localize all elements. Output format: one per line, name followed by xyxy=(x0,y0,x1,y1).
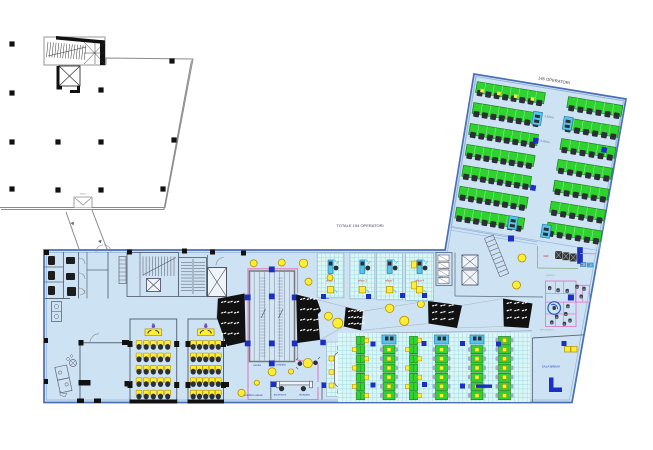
svg-text:ufficio 2: ufficio 2 xyxy=(358,279,367,283)
svg-text:entrata: entrata xyxy=(276,363,286,367)
svg-text:SALA BREAK: SALA BREAK xyxy=(542,365,561,369)
svg-text:QUADRO: QUADRO xyxy=(440,267,449,270)
svg-text:ufficio 3: ufficio 3 xyxy=(385,279,394,283)
svg-text:UPS: UPS xyxy=(439,277,444,279)
svg-text:reception: reception xyxy=(299,393,311,397)
svg-text:UFFICIO: UFFICIO xyxy=(546,275,555,277)
svg-text:250cm: 250cm xyxy=(80,194,87,196)
svg-text:146 OPERATORI: 146 OPERATORI xyxy=(538,75,571,85)
svg-text:uscita: uscita xyxy=(253,363,261,367)
svg-text:TOTALE 154 OPERATORI: TOTALE 154 OPERATORI xyxy=(336,223,383,228)
svg-text:ascensore: ascensore xyxy=(274,393,287,397)
svg-text:CED: CED xyxy=(543,255,548,258)
svg-text:pubblico attesa: pubblico attesa xyxy=(244,393,263,397)
svg-text:RIPOSTIGLIO: RIPOSTIGLIO xyxy=(540,330,554,332)
